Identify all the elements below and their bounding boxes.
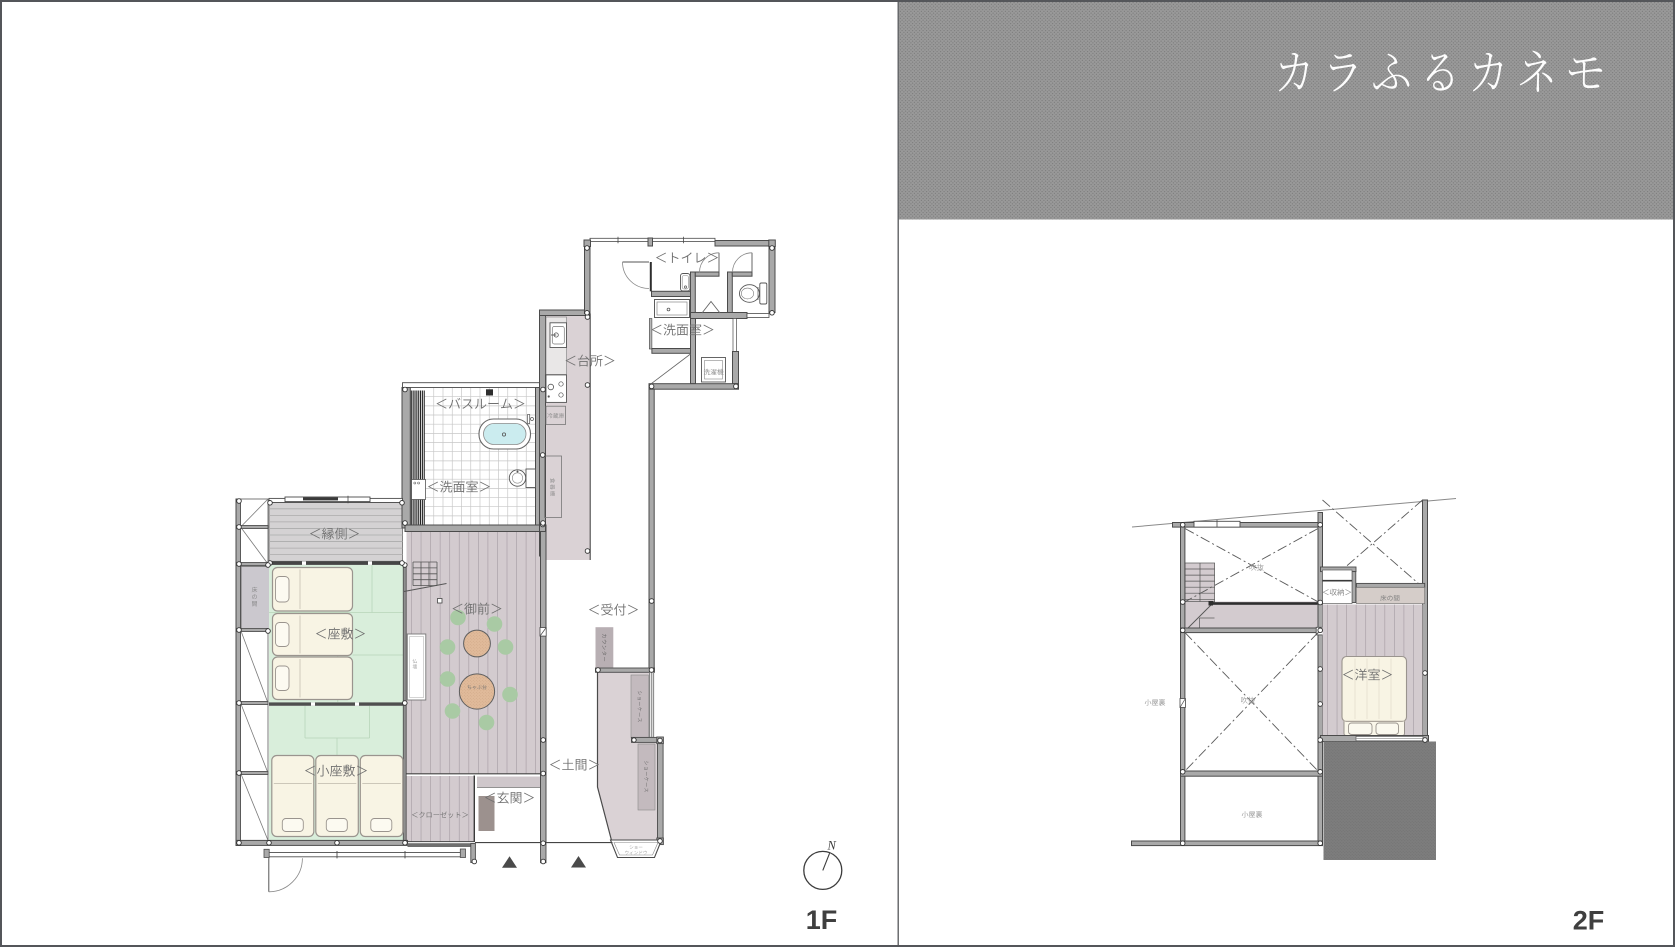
svg-text:2F: 2F — [1573, 905, 1605, 935]
svg-text:1F: 1F — [806, 905, 838, 935]
svg-text:N: N — [827, 839, 837, 853]
